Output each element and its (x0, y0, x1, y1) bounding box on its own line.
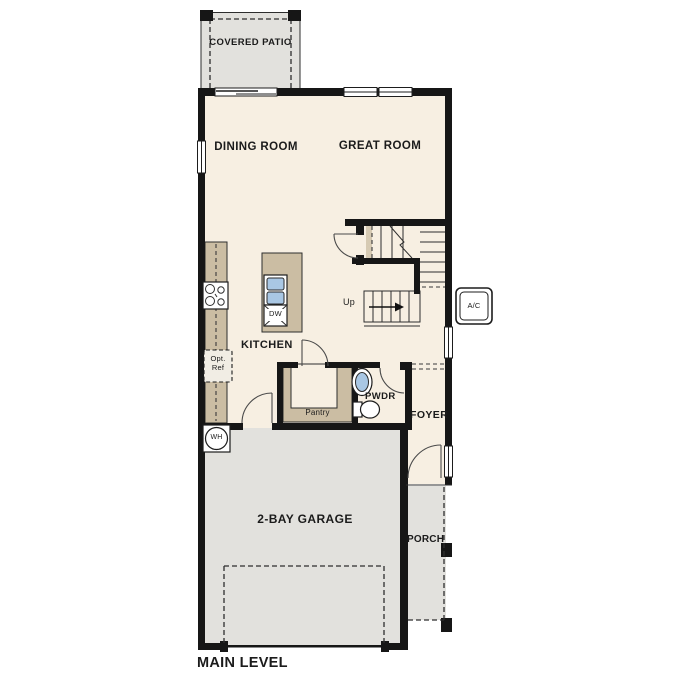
window (198, 141, 206, 173)
window (379, 88, 412, 97)
kitchen-label: KITCHEN (241, 339, 293, 352)
garage-door-header (226, 645, 383, 648)
stairs-up-label: Up (343, 297, 355, 308)
window (445, 446, 453, 477)
patio-post (288, 10, 301, 21)
garage-label: 2-BAY GARAGE (255, 512, 355, 526)
covered-patio-label: COVERED PATIO (205, 37, 296, 48)
patio-post (200, 10, 213, 21)
foyer-label: FOYER (410, 409, 448, 422)
dishwasher-label: DW (264, 309, 287, 318)
island-sink (264, 275, 287, 305)
floor-areas (201, 13, 448, 645)
powder-room-label: PWDR (365, 391, 396, 402)
ac-label: A/C (456, 301, 492, 310)
water-heater-label: WH (204, 434, 229, 442)
porch-label: PORCH (407, 534, 444, 546)
garage-area (204, 428, 402, 645)
porch-area (406, 486, 446, 620)
cooktop (203, 282, 228, 309)
level-title: MAIN LEVEL (197, 655, 288, 672)
great-room-label: GREAT ROOM (330, 140, 430, 154)
dining-room-label: DINING ROOM (211, 141, 301, 155)
covered-patio-area (201, 13, 300, 93)
patio-slider-door (215, 88, 277, 96)
window (344, 88, 377, 97)
window (445, 327, 453, 358)
floor-plan: COVERED PATIO DINING ROOM GREAT ROOM KIT… (0, 0, 687, 687)
toilet (353, 401, 380, 418)
pantry-label: Pantry (283, 408, 352, 418)
optional-ref-label: Opt. Ref (204, 354, 232, 372)
kitchen-counter (205, 242, 227, 423)
floor-plan-drawing (0, 0, 687, 687)
foyer-area (404, 426, 446, 484)
